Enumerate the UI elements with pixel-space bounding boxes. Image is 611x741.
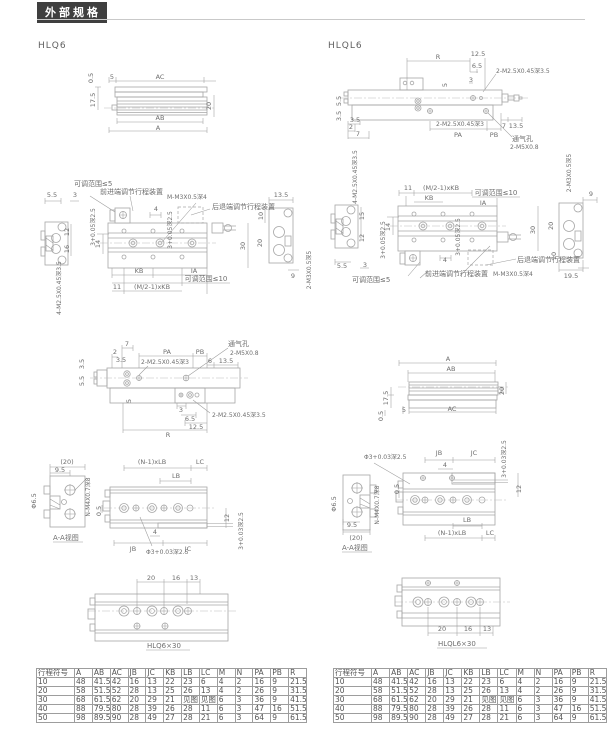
dim-jb: JB	[435, 449, 442, 457]
table-cell: 4	[516, 678, 534, 687]
table-cell: 21.5	[289, 678, 307, 687]
table-cell: 22	[164, 678, 182, 687]
dim-phi65: Φ6.5	[30, 493, 38, 508]
table-cell: 50	[334, 714, 372, 723]
dim-30: 30	[529, 226, 537, 234]
rail-caption: HLQL6×30	[438, 640, 476, 648]
table-cell: 58	[75, 687, 93, 696]
dowel-callout: Φ3+0.03深2.5	[146, 548, 189, 556]
dim-0-5: 0.5	[377, 411, 385, 421]
dim-ab: AB	[447, 365, 456, 373]
thread-callout: 2-M2.5X0.45深3	[436, 120, 484, 128]
table-cell: 49	[444, 714, 462, 723]
dim-20: 20	[547, 222, 555, 230]
table-cell: 21	[498, 714, 516, 723]
dim-jc: JC	[470, 449, 478, 457]
col-header: LB	[182, 669, 200, 678]
hlql6-section-and-rail: Φ3+0.03深2.5 9.5 (20) Φ6.5 N-M4X0.7深8 A-A…	[330, 440, 523, 552]
col-header: AC	[408, 669, 426, 678]
table-row: 205851.55228132526134226931.5	[334, 687, 607, 696]
table-cell: 64	[552, 714, 570, 723]
table-cell: 51.5	[588, 705, 606, 714]
table-row: 104841.5421613222364216921.5	[334, 678, 607, 687]
col-header: JB	[128, 669, 146, 678]
dim-jb: JB	[129, 545, 136, 553]
table-cell: 9	[570, 687, 588, 696]
table-cell: 13	[444, 687, 462, 696]
table-cell: 6	[217, 696, 235, 705]
dim-12-5: 12.5	[189, 423, 203, 431]
table-cell: 见图	[199, 696, 217, 705]
dim-10: 10	[550, 252, 558, 260]
table-cell: 62	[408, 696, 426, 705]
dim-9-5: 9.5	[55, 466, 65, 474]
table-cell: 6	[516, 705, 534, 714]
table-cell: 16	[253, 678, 271, 687]
table-cell: 88	[372, 705, 390, 714]
table-cell: 31.5	[588, 687, 606, 696]
dim-mkb: (M/2-1)xKB	[134, 283, 170, 291]
dim-10: 10	[257, 212, 265, 220]
table-cell: 52	[110, 687, 128, 696]
table-cell: 39	[444, 705, 462, 714]
dim-nlb: (N-1)xLB	[138, 458, 166, 466]
dim-13-5: 13.5	[509, 122, 523, 130]
dim-5: 5	[402, 406, 406, 414]
thread-callout: 2-M2.5X0.45深3.5	[496, 67, 550, 75]
col-header: LB	[480, 669, 498, 678]
table-cell: 6	[217, 705, 235, 714]
table-cell: 26	[552, 687, 570, 696]
table-cell: 21	[199, 714, 217, 723]
table-cell: 28	[128, 705, 146, 714]
thread-callout: N-M4X0.7深8	[84, 477, 92, 516]
dim-7b: 7	[502, 122, 506, 130]
dim-phi65: Φ6.5	[330, 496, 338, 511]
table-cell: 6	[498, 678, 516, 687]
dim-20: 20	[498, 387, 506, 395]
dim-30: 30	[239, 242, 247, 250]
table-cell: 40	[37, 705, 75, 714]
col-header: R	[289, 669, 307, 678]
dim-13: 13	[190, 574, 198, 582]
table-cell: 90	[110, 714, 128, 723]
table-cell: 2	[235, 687, 253, 696]
dim-9: 9	[589, 190, 593, 198]
dim-6-5: 6.5	[185, 415, 195, 423]
table-row: 306861.562202921见图见图6336941.5	[37, 696, 307, 705]
table-cell: 28	[480, 714, 498, 723]
thread-callout: M-M3X0.5深4	[167, 193, 207, 201]
dim-ia: IA	[191, 267, 198, 275]
table-cell: 28	[480, 705, 498, 714]
dim-a: A	[446, 355, 451, 363]
dim-20p: (20)	[349, 534, 362, 542]
table-cell: 98	[372, 714, 390, 723]
table-cell: 79.5	[92, 705, 110, 714]
thread-callout: 4-M2.5X0.45深3.5	[351, 150, 359, 204]
table-row: 104841.5421613222364216921.5	[37, 678, 307, 687]
col-header: A	[372, 669, 390, 678]
dim-7: 7	[125, 340, 129, 348]
dim-12: 12	[358, 234, 366, 242]
dim-0-5: 0.5	[393, 484, 401, 494]
dim-3-5b: 3.5	[78, 359, 86, 369]
table-cell: 51.5	[92, 687, 110, 696]
table-cell: 62	[110, 696, 128, 705]
dim-11: 11	[404, 184, 412, 192]
table-cell: 9	[271, 696, 289, 705]
table-cell: 16	[271, 705, 289, 714]
table-cell: 21	[164, 696, 182, 705]
table-cell: 58	[372, 687, 390, 696]
table-cell: 2	[235, 678, 253, 687]
dim-2: 2	[113, 348, 117, 356]
table-cell: 61.5	[390, 696, 408, 705]
dim-13-5: 13.5	[274, 191, 288, 199]
col-header: PA	[552, 669, 570, 678]
table-cell: 16	[552, 678, 570, 687]
thread-callout: M-M3X0.5深4	[493, 270, 533, 278]
table-cell: 20	[334, 687, 372, 696]
table-cell: 61.5	[92, 696, 110, 705]
dim-pb: PB	[490, 131, 498, 139]
table-cell: 90	[408, 714, 426, 723]
technical-drawings-canvas: AC 5 0.5 17.5 20 AB A	[0, 0, 611, 741]
thread-callout: 2-M3X0.5深5	[565, 154, 573, 193]
dim-2: 2	[349, 123, 353, 131]
table-cell: 40	[334, 705, 372, 714]
dim-17-5: 17.5	[382, 391, 390, 405]
adjust-range-label: 可调范围≤5	[352, 275, 390, 284]
section-view-label: A-A视图	[342, 543, 368, 552]
table-cell: 48	[372, 678, 390, 687]
dim-pa: PA	[163, 348, 172, 356]
table-cell: 26	[182, 687, 200, 696]
dim-lb: LB	[463, 516, 471, 524]
table-cell: 88	[75, 705, 93, 714]
table-cell: 16	[570, 705, 588, 714]
dim-7: 7	[356, 130, 360, 138]
dim-3: 3	[469, 76, 473, 84]
table-cell: 13	[444, 678, 462, 687]
table-cell: 3	[235, 705, 253, 714]
col-header: 行程符号	[37, 669, 75, 678]
dim-20p: (20)	[60, 458, 73, 466]
col-header: PA	[253, 669, 271, 678]
table-cell: 41.5	[588, 696, 606, 705]
table-cell: 见图	[182, 696, 200, 705]
col-header: LC	[199, 669, 217, 678]
dim-kb: KB	[135, 267, 144, 275]
table-cell: 10	[334, 678, 372, 687]
dim-lc: LC	[196, 458, 205, 466]
table-cell: 28	[128, 687, 146, 696]
table-cell: 79.5	[390, 705, 408, 714]
table-row: 509889.59028492728216364961.5	[334, 714, 607, 723]
table-cell: 3	[534, 705, 552, 714]
thread-callout: 2-M3X0.5深5	[305, 251, 313, 290]
table-cell: 48	[75, 678, 93, 687]
table-cell: 9	[271, 678, 289, 687]
table-cell: 42	[408, 678, 426, 687]
dim-12: 12	[63, 228, 71, 236]
dim-4: 4	[154, 205, 158, 213]
dim-ia: IA	[480, 199, 487, 207]
col-header: LC	[498, 669, 516, 678]
table-row: 509889.59028492728216364961.5	[37, 714, 307, 723]
table-cell: 49	[146, 714, 164, 723]
table-cell: 29	[146, 696, 164, 705]
dim-lb: LB	[172, 472, 180, 480]
dim-9-5: 9.5	[347, 521, 357, 529]
dim-5: 5	[441, 83, 449, 87]
dim-4: 4	[443, 461, 447, 469]
hlql6-top-view: R 12.5 6.5 2-M2.5X0.45深3.5 3 5 5.5 3.5 3…	[335, 50, 550, 151]
table-cell: 6	[199, 678, 217, 687]
table-cell: 26	[253, 687, 271, 696]
dim-13: 13	[483, 625, 491, 633]
dim-9: 9	[291, 272, 295, 280]
hlq6-dimension-table: 行程符号AABACJBJCKBLBLCMNPAPBR104841.5421613…	[36, 668, 307, 723]
dowel-callout: 3+0.05深2.5	[379, 221, 387, 259]
table-row: 408879.580283926281163471651.5	[37, 705, 307, 714]
table-cell: 50	[37, 714, 75, 723]
table-cell: 41.5	[289, 696, 307, 705]
table-cell: 2	[534, 678, 552, 687]
col-header: AC	[110, 669, 128, 678]
table-cell: 10	[37, 678, 75, 687]
table-cell: 26	[164, 705, 182, 714]
table-cell: 见图	[480, 696, 498, 705]
table-cell: 25	[462, 687, 480, 696]
table-cell: 29	[444, 696, 462, 705]
hlql6-plan-view: 11 (M/2-1)xKB KB 可调范围≤10 IA 15 12 14 3+0…	[331, 150, 597, 284]
table-cell: 47	[253, 705, 271, 714]
table-cell: 16	[128, 678, 146, 687]
col-header: JB	[426, 669, 444, 678]
dim-3-5: 3.5	[116, 356, 126, 364]
dim-a: A	[156, 124, 161, 132]
dim-mkb: (M/2-1)xKB	[423, 184, 459, 192]
table-cell: 39	[146, 705, 164, 714]
section-view-label: A-A视图	[53, 533, 79, 542]
table-cell: 41.5	[390, 678, 408, 687]
hlql6-dimension-table: 行程符号AABACJBJCKBLBLCMNPAPBR104841.5421613…	[333, 668, 607, 723]
hlq6-plan-view: 可调范围≤5 5.5 3 前进端调节行程装置 M-M3X0.5深4 后退端调节行…	[41, 179, 313, 315]
dim-20: 20	[147, 574, 155, 582]
dim-5: 5	[125, 399, 133, 403]
table-cell: 16	[426, 678, 444, 687]
col-header: N	[235, 669, 253, 678]
col-header: M	[217, 669, 235, 678]
table-cell: 27	[164, 714, 182, 723]
col-header: KB	[462, 669, 480, 678]
table-cell: 9	[570, 696, 588, 705]
table-cell: 20	[426, 696, 444, 705]
dim-5-5: 5.5	[78, 376, 86, 386]
dowel-callout: 3+0.03深2.5	[237, 512, 245, 550]
dim-6-5: 6.5	[472, 62, 482, 70]
dim-3: 3	[179, 406, 183, 414]
thread-callout: 4-M2.5X0.45深3.5	[55, 261, 63, 315]
dim-4: 4	[153, 528, 157, 536]
table-cell: 20	[128, 696, 146, 705]
dim-kb: KB	[425, 194, 434, 202]
dim-15: 15	[358, 212, 366, 220]
table-cell: 42	[110, 678, 128, 687]
table-cell: 68	[75, 696, 93, 705]
table-cell: 11	[498, 705, 516, 714]
table-cell: 13	[146, 687, 164, 696]
dim-pa: PA	[454, 131, 463, 139]
col-header: N	[534, 669, 552, 678]
table-cell: 3	[235, 714, 253, 723]
dim-5-5: 5.5	[337, 262, 347, 270]
table-cell: 22	[462, 678, 480, 687]
drawing-lines	[88, 579, 236, 641]
dim-12: 12	[223, 514, 231, 522]
table-cell: 26	[480, 687, 498, 696]
dim-5-5: 5.5	[47, 191, 57, 199]
table-cell: 36	[552, 696, 570, 705]
dim-12-5: 12.5	[471, 50, 485, 58]
table-cell: 23	[480, 678, 498, 687]
dim-6: 6	[208, 357, 212, 365]
dowel-callout: 3+0.05深2.5	[89, 208, 97, 246]
dowel-callout: 3+0.05深2.5	[454, 218, 462, 256]
thread-callout: N-M4X0.7深8	[373, 485, 381, 524]
table-cell: 80	[110, 705, 128, 714]
hlq6-x30-rail: 20 16 13 HLQ6×30	[88, 574, 236, 650]
adjust-range-label: 可调范围≤10	[475, 188, 518, 197]
table-cell: 6	[217, 714, 235, 723]
table-cell: 98	[75, 714, 93, 723]
hlql6-side-view: A AB 17.5 20 0.5 5 AC	[377, 355, 508, 421]
dim-19-5: 19.5	[564, 272, 578, 280]
table-header-row: 行程符号AABACJBJCKBLBLCMNPAPBR	[334, 669, 607, 678]
table-cell: 11	[199, 705, 217, 714]
dim-12: 12	[515, 485, 523, 493]
drawing-lines	[395, 578, 510, 636]
dim-nlb: (N-1)xLB	[438, 529, 466, 537]
dim-17-5: 17.5	[89, 93, 97, 107]
hlq6-section-and-rail: (20) 9.5 Φ6.5 N-M4X0.7深8 A-A视图 (N-1)xLB …	[30, 458, 245, 556]
table-cell: 3	[534, 696, 552, 705]
dim-20: 20	[205, 102, 213, 110]
thread-callout: 2-M2.5X0.45深3	[141, 358, 189, 366]
adjust-range-label: 可调范围≤10	[185, 274, 228, 283]
dim-lc: LC	[486, 529, 495, 537]
table-cell: 36	[253, 696, 271, 705]
dim-20: 20	[256, 239, 264, 247]
table-cell: 13	[498, 687, 516, 696]
table-cell: 89.5	[92, 714, 110, 723]
dim-pb: PB	[196, 348, 204, 356]
vent-thread-label: 2-M5X0.8	[510, 144, 539, 151]
table-cell: 21	[462, 696, 480, 705]
adjust-range-label: 可调范围≤5	[74, 179, 112, 188]
table-cell: 4	[217, 678, 235, 687]
table-cell: 23	[182, 678, 200, 687]
dim-5: 5	[110, 73, 114, 81]
dowel-callout: Φ3+0.03深2.5	[364, 453, 407, 461]
table-cell: 6	[516, 696, 534, 705]
table-cell: 21.5	[588, 678, 606, 687]
table-row: 306861.562202921见图见图6336941.5	[334, 696, 607, 705]
dim-11: 11	[113, 283, 121, 291]
col-header: 行程符号	[334, 669, 372, 678]
table-cell: 31.5	[289, 687, 307, 696]
table-cell: 51.5	[390, 687, 408, 696]
table-cell: 13	[146, 678, 164, 687]
table-cell: 28	[182, 705, 200, 714]
dim-4: 4	[443, 256, 447, 264]
table-cell: 9	[271, 714, 289, 723]
dim-r: R	[436, 53, 441, 61]
dim-16: 16	[464, 625, 472, 633]
table-cell: 4	[516, 687, 534, 696]
catalog-page: 外部规格 HLQ6 HLQL6 AC 5 0.5 17.5 20 AB A	[0, 0, 611, 741]
col-header: R	[588, 669, 606, 678]
table-cell: 9	[570, 714, 588, 723]
dim-ac: AC	[156, 73, 165, 81]
dim-0-5: 0.5	[95, 506, 103, 516]
dim-16: 16	[172, 574, 180, 582]
table-cell: 28	[426, 714, 444, 723]
col-header: KB	[164, 669, 182, 678]
table-cell: 28	[426, 687, 444, 696]
drawing-lines	[331, 190, 597, 278]
col-header: PB	[570, 669, 588, 678]
dim-3: 3	[73, 191, 77, 199]
table-cell: 28	[182, 714, 200, 723]
table-row: 205851.55228132526134226931.5	[37, 687, 307, 696]
dowel-callout: 3+0.05深2.5	[166, 211, 174, 249]
vent-hole-label: 通气孔	[512, 134, 533, 143]
table-cell: 30	[334, 696, 372, 705]
table-cell: 61.5	[588, 714, 606, 723]
table-cell: 28	[426, 705, 444, 714]
front-adjuster-label: 前进端调节行程装置	[425, 269, 488, 278]
table-cell: 13	[199, 687, 217, 696]
hlq6-side-view: AC 5 0.5 17.5 20 AB A	[87, 73, 216, 133]
table-cell: 61.5	[289, 714, 307, 723]
table-cell: 9	[271, 687, 289, 696]
table-cell: 47	[552, 705, 570, 714]
table-cell: 4	[217, 687, 235, 696]
dim-13-5: 13.5	[219, 357, 233, 365]
table-cell: 9	[570, 678, 588, 687]
hlq6-bottom-view: 7 2 PA PB 通气孔 2-M5X0.8 3.5 3.5 5.5 2-M2.…	[78, 339, 266, 439]
table-cell: 见图	[498, 696, 516, 705]
table-cell: 3	[235, 696, 253, 705]
col-header: PB	[271, 669, 289, 678]
dim-16: 16	[63, 245, 71, 253]
rear-adjuster-label: 后退端调节行程装置	[517, 255, 580, 264]
col-header: JC	[444, 669, 462, 678]
thread-callout: 2-M2.5X0.45深3.5	[212, 411, 266, 419]
table-cell: 6	[516, 714, 534, 723]
table-cell: 52	[408, 687, 426, 696]
dim-ab: AB	[156, 114, 165, 122]
rail-caption: HLQ6×30	[147, 642, 181, 650]
front-adjuster-label: 前进端调节行程装置	[100, 187, 163, 196]
dim-r: R	[166, 431, 171, 439]
table-cell: 3	[534, 714, 552, 723]
table-cell: 41.5	[92, 678, 110, 687]
table-cell: 80	[408, 705, 426, 714]
